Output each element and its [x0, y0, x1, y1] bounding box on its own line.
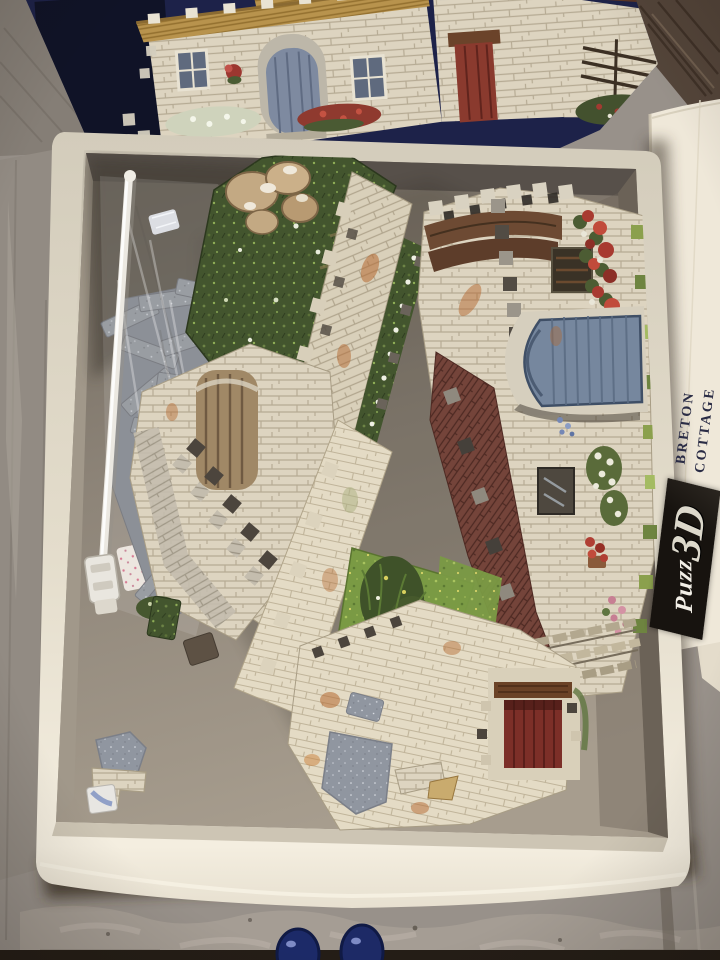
logo-script-text: Puzz [670, 558, 698, 614]
logo-3d-text: 3D [664, 501, 712, 564]
vignette [0, 0, 720, 960]
scene-canvas [0, 0, 720, 960]
photo-scene: BRETON COTTAGE Puzz 3D [0, 0, 720, 960]
